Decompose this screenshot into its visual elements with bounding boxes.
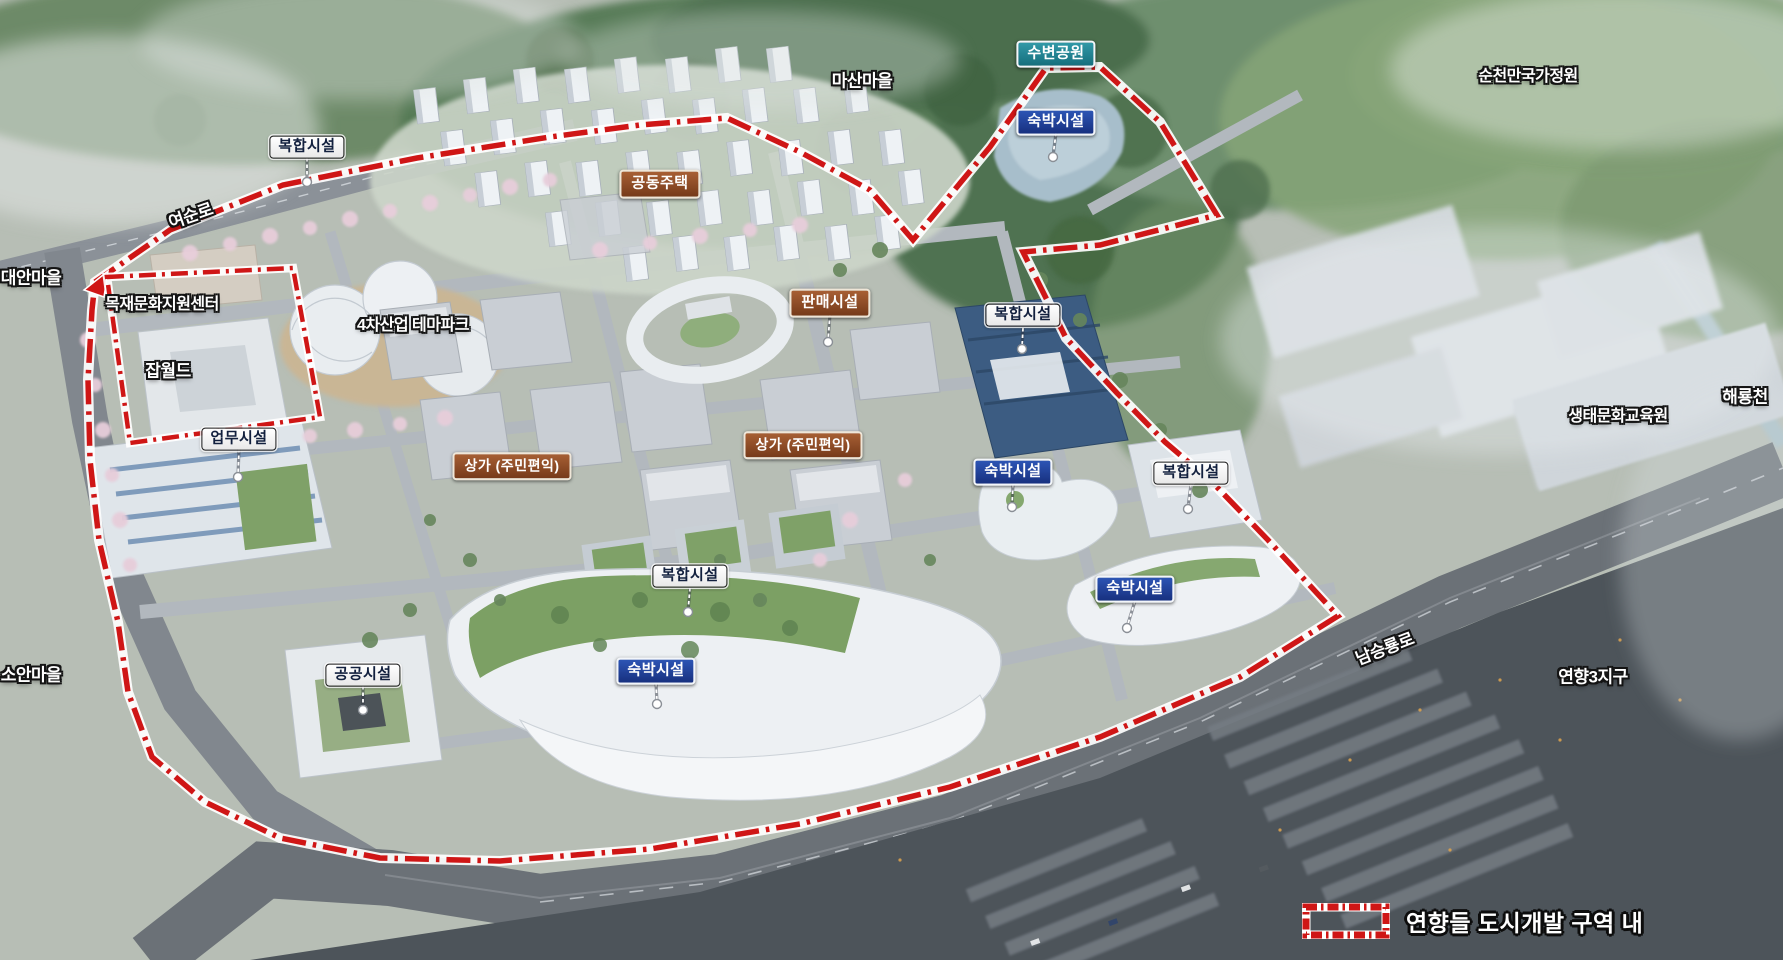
- boundary-swatch-icon: [1302, 903, 1390, 939]
- facility-label-lodging: 숙박시설: [1016, 109, 1095, 136]
- facility-label-mixed-use: 복합시설: [652, 565, 727, 588]
- facility-label-mixed-use: 복합시설: [1153, 462, 1228, 485]
- label-eco-culture-education-center: 생태문화교육원: [1568, 402, 1668, 426]
- facility-label-housing: 공동주택: [619, 170, 700, 199]
- facility-label-public: 공공시설: [325, 664, 400, 687]
- facility-label-waterside-park: 수변공원: [1016, 41, 1095, 68]
- label-wood-culture-center: 목재문화지원센터: [105, 290, 219, 314]
- label-job-world: 잡월드: [145, 357, 190, 382]
- facility-label-lodging: 숙박시설: [973, 459, 1052, 486]
- label-soan-village: 소안마을: [1, 661, 62, 686]
- facility-label-mixed-use: 복합시설: [269, 136, 344, 159]
- facility-label-retail: 판매시설: [789, 289, 870, 318]
- label-yeonhyang-3-district: 연향3지구: [1558, 663, 1628, 688]
- facility-label-mixed-use: 복합시설: [985, 304, 1060, 327]
- label-4th-industry-theme-park: 4차산업 테마파크: [357, 311, 469, 335]
- facility-label-shops: 상가 (주민편익): [453, 452, 572, 480]
- label-haeryong-stream: 해룡천: [1722, 383, 1767, 408]
- aerial-render-background: [0, 0, 1783, 960]
- facility-label-shops: 상가 (주민편익): [744, 431, 863, 459]
- facility-label-office: 업무시설: [201, 428, 276, 451]
- legend-label: 연향들 도시개발 구역 내: [1406, 904, 1643, 938]
- facility-label-lodging: 숙박시설: [1095, 576, 1174, 603]
- label-suncheonman-national-garden: 순천만국가정원: [1478, 62, 1578, 86]
- label-masan-village: 마산마을: [832, 67, 893, 92]
- label-daean-village: 대안마을: [1, 264, 62, 289]
- legend: 연향들 도시개발 구역 내: [1302, 903, 1643, 939]
- aerial-development-plan: 수변공원 숙박시설 복합시설 업무시설 공동주택 판매시설 상가 (주민편익) …: [0, 0, 1783, 960]
- facility-label-lodging: 숙박시설: [616, 658, 695, 685]
